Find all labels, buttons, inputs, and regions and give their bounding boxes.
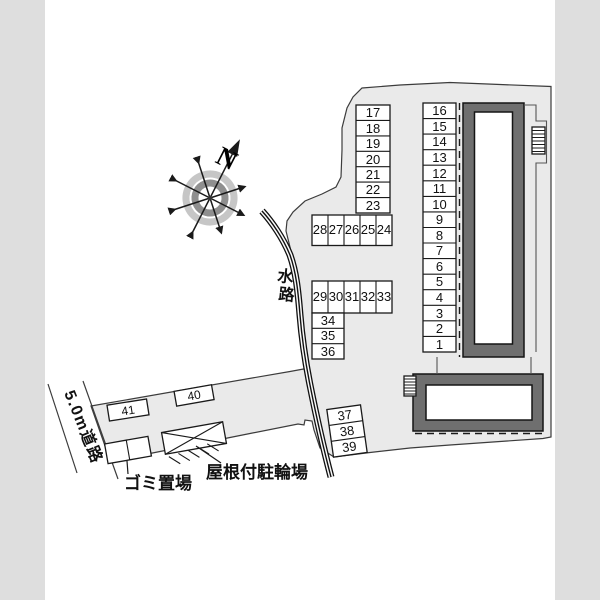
- space-30: 30: [329, 289, 343, 304]
- space-40: 40: [186, 387, 202, 403]
- space-20: 20: [366, 152, 380, 167]
- space-18: 18: [366, 121, 380, 136]
- space-39: 39: [341, 438, 357, 455]
- space-6: 6: [436, 259, 443, 274]
- space-5: 5: [436, 274, 443, 289]
- space-12: 12: [432, 166, 446, 181]
- building-lower: [413, 374, 543, 431]
- space-29: 29: [313, 289, 327, 304]
- space-3: 3: [436, 306, 443, 321]
- space-19: 19: [366, 136, 380, 151]
- space-10: 10: [432, 197, 446, 212]
- space-27: 27: [329, 222, 343, 237]
- space-22: 22: [366, 182, 380, 197]
- space-41: 41: [120, 402, 136, 418]
- building-main: [463, 103, 524, 357]
- parking-col-d: 37 38 39: [327, 405, 367, 457]
- space-31: 31: [345, 289, 359, 304]
- site-plan-svg: 5.0m道路 水 路 N 17 18 19 20 21 22 23: [0, 0, 600, 600]
- waterway-label-char2: 路: [278, 284, 297, 305]
- space-26: 26: [345, 222, 359, 237]
- space-11: 11: [433, 181, 447, 196]
- stairs-icon-right: [532, 127, 545, 154]
- parking-row-upper: 28 27 26 25 24: [312, 215, 392, 246]
- space-36: 36: [321, 344, 335, 359]
- space-35: 35: [321, 328, 335, 343]
- space-16: 16: [432, 103, 446, 118]
- space-32: 32: [361, 289, 375, 304]
- space-1: 1: [436, 337, 443, 352]
- space-9: 9: [436, 212, 443, 227]
- parking-col-b: 16 15 14 13 12 11 10 9 8 7 6 5 4 3 2 1: [423, 103, 456, 352]
- garbage-label: ゴミ置場: [124, 473, 192, 493]
- space-34: 34: [321, 313, 335, 328]
- space-13: 13: [432, 150, 446, 165]
- space-7: 7: [436, 243, 443, 258]
- space-17: 17: [366, 105, 380, 120]
- parking-row-lower: 29 30 31 32 33: [312, 281, 392, 313]
- space-37: 37: [337, 407, 353, 424]
- waterway-label-char1: 水: [276, 266, 295, 287]
- space-14: 14: [432, 134, 446, 149]
- space-21: 21: [366, 167, 380, 182]
- space-28: 28: [313, 222, 327, 237]
- space-4: 4: [436, 290, 443, 305]
- parking-col-a: 17 18 19 20 21 22 23: [356, 105, 390, 213]
- space-2: 2: [436, 321, 443, 336]
- space-15: 15: [432, 119, 446, 134]
- space-25: 25: [361, 222, 375, 237]
- space-38: 38: [339, 423, 355, 440]
- parking-col-c: 34 35 36: [312, 313, 344, 359]
- space-23: 23: [366, 198, 380, 213]
- space-24: 24: [377, 222, 391, 237]
- space-33: 33: [377, 289, 391, 304]
- bicycle-shed-label: 屋根付駐輪場: [206, 462, 308, 482]
- space-8: 8: [436, 228, 443, 243]
- site-plan: 5.0m道路 水 路 N 17 18 19 20 21 22 23: [0, 0, 600, 600]
- stairs-icon-lower: [404, 376, 416, 396]
